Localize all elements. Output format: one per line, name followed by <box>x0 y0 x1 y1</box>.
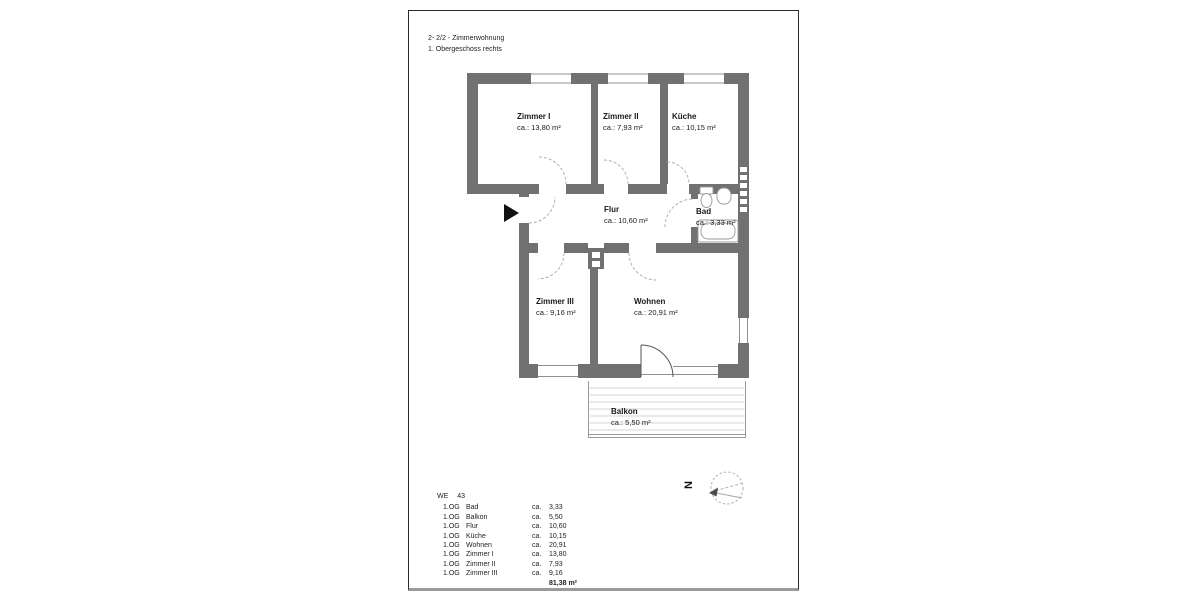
entrance-door-arc <box>529 197 555 223</box>
room-name: Balkon <box>611 407 651 416</box>
room-area: ca.: 9,16 m² <box>536 308 576 317</box>
total-area: 81,38 m² <box>549 579 585 588</box>
unit-number: 43 <box>457 492 465 501</box>
room-area: ca.: 3,33 m² <box>696 218 736 227</box>
north-arrow-compass <box>709 472 743 504</box>
entrance-arrow-icon <box>504 204 519 222</box>
staircase-hatch <box>738 164 749 213</box>
table-row: 1.OG Zimmer II ca. 7,93 <box>437 560 585 569</box>
table-total-row: 81,38 m² <box>437 579 585 588</box>
toilet <box>700 187 713 194</box>
table-row: 1.OG Flur ca. 10,60 <box>437 522 585 531</box>
north-label: N <box>683 477 699 493</box>
room-label-zimmer-ii: Zimmer II ca.: 7,93 m² <box>603 112 643 132</box>
room-area: ca.: 5,50 m² <box>611 418 651 427</box>
wohnen-door-arc <box>629 253 656 280</box>
room-name: Wohnen <box>634 297 678 306</box>
table-row: 1.OG Bad ca. 3,33 <box>437 503 585 512</box>
room-name: Küche <box>672 112 716 121</box>
room-label-zimmer-i: Zimmer I ca.: 13,80 m² <box>517 112 561 132</box>
room-area: ca.: 7,93 m² <box>603 123 643 132</box>
area-table: WE 43 1.OG Bad ca. 3,33 1.OG Balkon ca. … <box>437 492 585 588</box>
room-area: ca.: 13,80 m² <box>517 123 561 132</box>
kueche-door-arc <box>667 162 689 184</box>
compass-arrow-head <box>709 488 718 497</box>
table-row: 1.OG Küche ca. 10,15 <box>437 532 585 541</box>
room-label-balkon: Balkon ca.: 5,50 m² <box>611 407 651 427</box>
area-table-header: WE 43 <box>437 492 585 501</box>
room-area: ca.: 10,60 m² <box>604 216 648 225</box>
room-name: Zimmer I <box>517 112 561 121</box>
table-row: 1.OG Zimmer III ca. 9,16 <box>437 569 585 578</box>
room-label-wohnen: Wohnen ca.: 20,91 m² <box>634 297 678 317</box>
zimmer3-door-arc <box>538 253 564 279</box>
shaft <box>588 248 604 269</box>
room-area: ca.: 10,15 m² <box>672 123 716 132</box>
room-area: ca.: 20,91 m² <box>634 308 678 317</box>
table-row: 1.OG Balkon ca. 5,50 <box>437 513 585 522</box>
room-name: Flur <box>604 205 648 214</box>
room-name: Bad <box>696 207 736 216</box>
room-label-zimmer-iii: Zimmer III ca.: 9,16 m² <box>536 297 576 317</box>
table-row: 1.OG Wohnen ca. 20,91 <box>437 541 585 550</box>
balcony-door-arc <box>641 345 673 377</box>
room-label-kueche: Küche ca.: 10,15 m² <box>672 112 716 132</box>
room-name: Zimmer II <box>603 112 643 121</box>
room-label-flur: Flur ca.: 10,60 m² <box>604 205 648 225</box>
room-label-bad: Bad ca.: 3,33 m² <box>696 207 736 227</box>
unit-label: WE <box>437 492 448 501</box>
bad-door-arc <box>665 199 693 227</box>
zimmer2-door-arc <box>604 160 628 184</box>
table-row: 1.OG Zimmer I ca. 13,80 <box>437 550 585 559</box>
sink <box>717 188 731 204</box>
zimmer1-door-arc <box>539 157 566 184</box>
room-name: Zimmer III <box>536 297 576 306</box>
floor-plan-page: 2- 2/2 - Zimmerwohnung 1. Obergeschoss r… <box>408 10 799 591</box>
door-arcs <box>529 157 693 377</box>
